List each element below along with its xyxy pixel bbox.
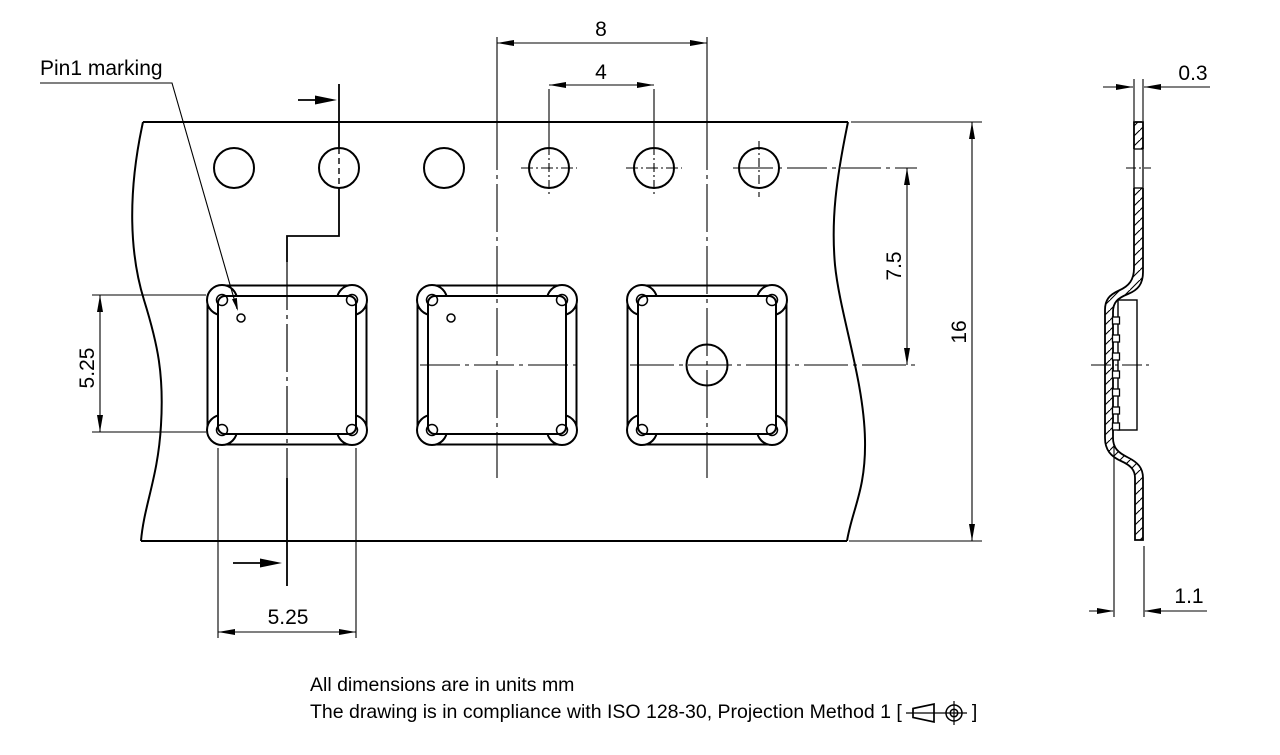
dim-arrow [690, 40, 707, 46]
tape-section-view: 0.3 1.1 [1089, 62, 1210, 617]
dim-arrow [904, 168, 910, 185]
note-compliance-bracket: ] [972, 699, 977, 726]
dim-arrow [637, 82, 654, 88]
dim-arrow [969, 122, 975, 139]
dim-arrow [339, 629, 356, 635]
carrier-tape-drawing: Pin1 marking 8 4 7.5 16 [0, 0, 1280, 755]
sprocket-hole [214, 148, 254, 188]
pin1-label: Pin1 marking [40, 57, 163, 80]
sprocket-hole [424, 148, 464, 188]
dim-arrow [1144, 608, 1161, 614]
dim-arrow [904, 348, 910, 365]
section-arrow-bottom [260, 559, 282, 568]
tape-right-break-line [834, 122, 865, 541]
pin1-annotation: Pin1 marking [40, 57, 240, 312]
dim-tape-width-label: 16 [948, 320, 971, 343]
dim-pocket-height-label: 5.25 [76, 348, 99, 389]
projection-method-1-icon [905, 699, 969, 727]
dim-hole-to-pocket-label: 7.5 [883, 251, 906, 280]
technical-drawing-canvas: Pin1 marking 8 4 7.5 16 [0, 0, 1280, 755]
dim-pocket-depth-label: 1.1 [1174, 585, 1203, 608]
note-units: All dimensions are in units mm [310, 672, 977, 699]
dim-arrow [549, 82, 566, 88]
dim-pocket-pitch-label: 8 [595, 18, 607, 41]
dim-tape-thickness-label: 0.3 [1178, 62, 1207, 85]
dim-arrow [97, 415, 103, 432]
pocket-2-pin1-mark [447, 314, 455, 322]
section-arrow-top [315, 96, 337, 105]
dim-arrow [969, 524, 975, 541]
dim-arrow [497, 40, 514, 46]
tape-top-view: Pin1 marking 8 4 7.5 16 [40, 18, 982, 638]
pocket-1-pin1-mark [237, 314, 245, 322]
note-compliance: The drawing is in compliance with ISO 12… [310, 699, 977, 726]
dim-hole-pitch [549, 85, 654, 146]
note-compliance-text: The drawing is in compliance with ISO 12… [310, 699, 902, 726]
dim-arrow [97, 295, 103, 312]
dim-arrow [1097, 608, 1114, 614]
drawing-notes: All dimensions are in units mm The drawi… [310, 672, 977, 726]
tape-left-break-line [132, 122, 162, 541]
dim-arrow [218, 629, 235, 635]
dim-arrow [1116, 84, 1133, 90]
dim-hole-pitch-label: 4 [595, 61, 607, 84]
dim-pocket-width-label: 5.25 [268, 606, 309, 629]
dim-arrow [1144, 84, 1161, 90]
note-units-text: All dimensions are in units mm [310, 672, 574, 699]
